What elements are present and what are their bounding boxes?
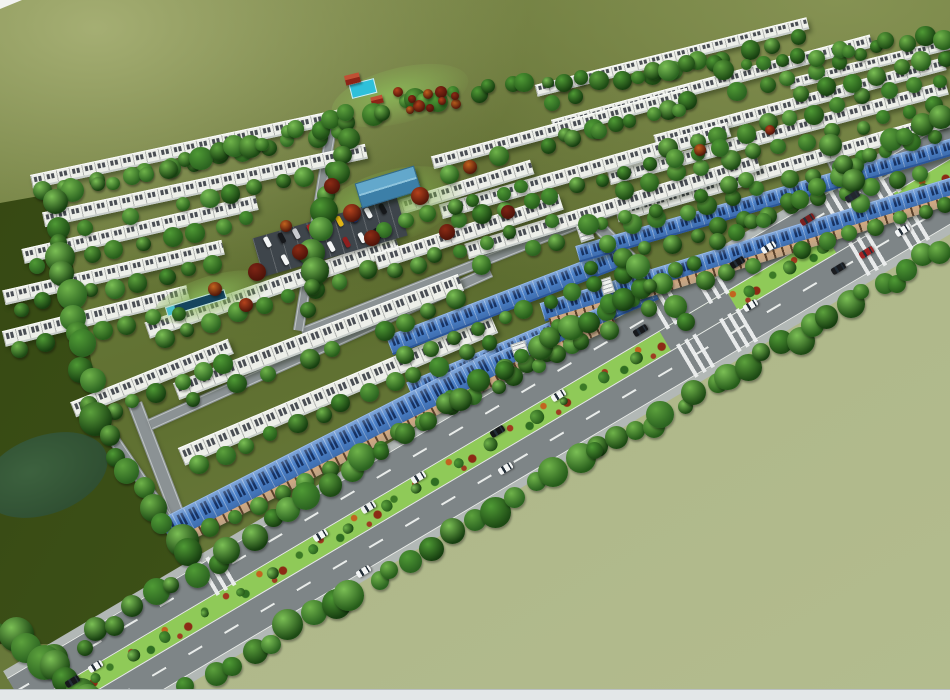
- red-tree: [248, 263, 266, 281]
- tree: [213, 354, 233, 374]
- tree: [608, 116, 624, 132]
- tree: [288, 414, 308, 434]
- tree: [881, 82, 898, 99]
- tree: [894, 59, 910, 75]
- tree: [760, 77, 776, 93]
- tree: [542, 77, 553, 88]
- tree: [524, 193, 540, 209]
- tree: [677, 313, 695, 331]
- tree: [896, 128, 913, 145]
- tree: [287, 120, 305, 138]
- red-tree: [343, 204, 361, 222]
- tree: [396, 314, 415, 333]
- tree: [713, 60, 733, 80]
- tree: [782, 110, 798, 126]
- tree: [668, 262, 683, 277]
- tree: [626, 421, 645, 440]
- tree: [139, 167, 154, 182]
- tree: [29, 258, 45, 274]
- tree: [681, 380, 706, 405]
- red-tree: [694, 144, 706, 156]
- tree: [466, 194, 479, 207]
- tree: [586, 276, 602, 292]
- parked-car: [342, 236, 352, 248]
- tree: [380, 561, 398, 579]
- tree: [929, 105, 950, 129]
- tree: [105, 616, 124, 635]
- tree: [159, 160, 178, 179]
- tree: [489, 146, 509, 166]
- red-tree: [280, 220, 292, 232]
- tree: [121, 595, 143, 617]
- tree: [584, 261, 597, 274]
- tree: [928, 241, 950, 264]
- tree: [514, 300, 533, 319]
- tree: [246, 179, 262, 195]
- tree: [186, 392, 200, 406]
- tree: [693, 160, 709, 176]
- tree: [781, 170, 798, 187]
- red-tree: [408, 95, 416, 103]
- tree: [578, 214, 599, 235]
- tree: [591, 123, 607, 139]
- tree: [106, 177, 119, 190]
- tree: [539, 327, 560, 348]
- tree: [899, 35, 916, 52]
- tree: [256, 297, 272, 313]
- tree: [175, 374, 191, 390]
- tree: [105, 279, 125, 299]
- tree: [933, 30, 950, 50]
- tree: [227, 374, 246, 393]
- red-tree: [463, 160, 477, 174]
- tree: [91, 177, 105, 191]
- tree: [319, 473, 342, 496]
- tree: [867, 67, 886, 86]
- tree: [172, 307, 186, 321]
- tree: [145, 309, 161, 325]
- tree: [492, 380, 506, 394]
- red-tree: [765, 125, 775, 135]
- tree: [69, 329, 96, 356]
- tree: [163, 227, 183, 247]
- tree: [448, 199, 464, 215]
- tree: [680, 205, 696, 221]
- red-tree: [426, 104, 434, 112]
- parked-car: [280, 254, 290, 266]
- tree: [419, 537, 444, 562]
- tree: [643, 157, 657, 171]
- tree: [375, 321, 395, 341]
- tree: [867, 219, 884, 236]
- tree: [294, 167, 314, 187]
- image-bottom-strip: [0, 689, 950, 700]
- tree: [174, 538, 202, 566]
- tree: [638, 241, 652, 255]
- tree: [480, 236, 494, 250]
- tree: [155, 329, 174, 348]
- red-tree: [411, 187, 429, 205]
- tree: [857, 121, 870, 134]
- tree: [159, 269, 175, 285]
- tree: [938, 51, 950, 67]
- tree: [808, 50, 825, 67]
- tree: [525, 240, 541, 256]
- parked-car: [326, 241, 336, 253]
- tree: [423, 341, 439, 357]
- tree: [617, 166, 631, 180]
- tree: [419, 412, 437, 430]
- red-tree: [324, 178, 340, 194]
- parked-car: [277, 232, 287, 244]
- tree: [696, 271, 715, 290]
- tree: [911, 51, 931, 71]
- tree: [793, 86, 809, 102]
- tree: [694, 189, 708, 203]
- tree: [472, 204, 492, 224]
- tree: [586, 442, 603, 459]
- red-tree: [501, 205, 515, 219]
- tree: [819, 134, 842, 157]
- tree: [804, 105, 824, 125]
- tree: [793, 241, 811, 259]
- red-tree: [451, 92, 459, 100]
- red-tree: [393, 87, 403, 97]
- tree: [213, 537, 239, 563]
- tree: [631, 71, 644, 84]
- tree: [239, 211, 253, 225]
- tree: [829, 97, 845, 113]
- tree: [453, 245, 466, 258]
- tree: [672, 104, 686, 118]
- tree: [221, 184, 240, 203]
- parked-car: [378, 203, 388, 215]
- tree: [514, 180, 528, 194]
- tree: [618, 210, 632, 224]
- tree: [128, 273, 147, 292]
- red-tree: [439, 224, 455, 240]
- tree: [337, 104, 353, 120]
- tree: [117, 316, 136, 335]
- tree: [819, 232, 836, 249]
- tree: [578, 312, 599, 333]
- tree: [84, 617, 107, 640]
- estate-aerial-render: [0, 0, 950, 700]
- tree: [791, 29, 807, 45]
- tree: [626, 254, 651, 279]
- parked-car: [263, 236, 273, 248]
- tree: [798, 134, 815, 151]
- parked-car: [291, 228, 301, 240]
- tree: [123, 167, 141, 185]
- tree: [568, 89, 582, 103]
- tree: [538, 457, 568, 487]
- tree: [641, 300, 658, 317]
- tree: [514, 73, 534, 93]
- tree: [658, 60, 678, 80]
- red-tree: [239, 298, 253, 312]
- tree: [185, 223, 204, 242]
- tree: [613, 71, 632, 90]
- tree: [14, 303, 28, 317]
- tree: [396, 346, 413, 363]
- tree: [569, 177, 585, 193]
- tree: [446, 289, 466, 309]
- tree: [449, 388, 472, 411]
- tree: [691, 229, 705, 243]
- tree: [541, 138, 557, 154]
- tree: [387, 263, 403, 279]
- tree: [862, 148, 876, 162]
- tree: [876, 110, 890, 124]
- tree: [176, 197, 190, 211]
- tree: [201, 313, 221, 333]
- tree: [815, 305, 839, 329]
- tree: [737, 124, 757, 144]
- tree: [427, 247, 443, 263]
- tree: [678, 55, 695, 72]
- tree: [563, 283, 581, 301]
- tree: [77, 220, 93, 236]
- tree: [429, 357, 449, 377]
- tree: [532, 359, 546, 373]
- tree: [216, 446, 235, 465]
- tree: [791, 190, 809, 208]
- tree: [122, 208, 139, 225]
- tree: [548, 234, 565, 251]
- red-tree: [406, 106, 414, 114]
- tree: [574, 70, 589, 85]
- red-tree: [292, 244, 308, 260]
- tree: [201, 518, 220, 537]
- tree: [309, 217, 332, 240]
- tree: [395, 423, 415, 443]
- tree: [440, 165, 459, 184]
- tree: [93, 321, 113, 341]
- tree: [646, 401, 673, 428]
- tree: [738, 172, 754, 188]
- red-tree: [208, 282, 222, 296]
- red-tree: [364, 230, 380, 246]
- tree: [937, 197, 950, 213]
- red-tree: [423, 89, 433, 99]
- tree: [663, 235, 682, 254]
- tree: [100, 425, 120, 445]
- tree: [817, 77, 836, 96]
- tree: [756, 213, 770, 227]
- tree: [447, 331, 460, 344]
- image-corner-sliver: [0, 0, 22, 9]
- tree: [374, 105, 390, 121]
- tree: [373, 444, 389, 460]
- tree: [919, 205, 933, 219]
- tree: [770, 139, 786, 155]
- tree: [467, 369, 490, 392]
- tree: [497, 187, 511, 201]
- tree: [623, 114, 636, 127]
- tree: [589, 71, 608, 90]
- tree: [43, 189, 68, 214]
- tree: [503, 225, 517, 239]
- tree: [398, 213, 414, 229]
- tree: [779, 71, 795, 87]
- tree: [194, 362, 213, 381]
- tree: [808, 178, 826, 196]
- tree: [34, 292, 51, 309]
- tree: [933, 75, 946, 88]
- tree: [300, 349, 320, 369]
- tree: [222, 657, 242, 677]
- tree: [687, 256, 702, 271]
- tree: [615, 181, 634, 200]
- tree: [842, 169, 865, 192]
- tree: [555, 74, 573, 92]
- tree: [276, 174, 290, 188]
- tree: [649, 204, 663, 218]
- red-tree: [438, 97, 446, 105]
- tree: [906, 77, 922, 93]
- tree: [263, 426, 277, 440]
- tree: [472, 255, 492, 275]
- tree: [261, 635, 280, 654]
- tree: [790, 48, 805, 63]
- tree: [80, 368, 106, 394]
- tree: [728, 224, 745, 241]
- tree: [420, 303, 436, 319]
- tree: [514, 349, 528, 363]
- tree: [600, 321, 619, 340]
- tree: [181, 262, 195, 276]
- tree: [599, 235, 616, 252]
- tree: [136, 237, 150, 251]
- tree: [348, 443, 376, 471]
- tree: [386, 372, 405, 391]
- tree: [146, 383, 166, 403]
- tree: [643, 279, 657, 293]
- red-tree: [451, 99, 461, 109]
- tree: [185, 563, 210, 588]
- parked-car: [364, 207, 374, 219]
- tree: [359, 260, 378, 279]
- tree: [889, 171, 906, 188]
- tree: [324, 341, 340, 357]
- tree: [333, 580, 364, 611]
- tree: [163, 577, 178, 592]
- tree: [84, 246, 101, 263]
